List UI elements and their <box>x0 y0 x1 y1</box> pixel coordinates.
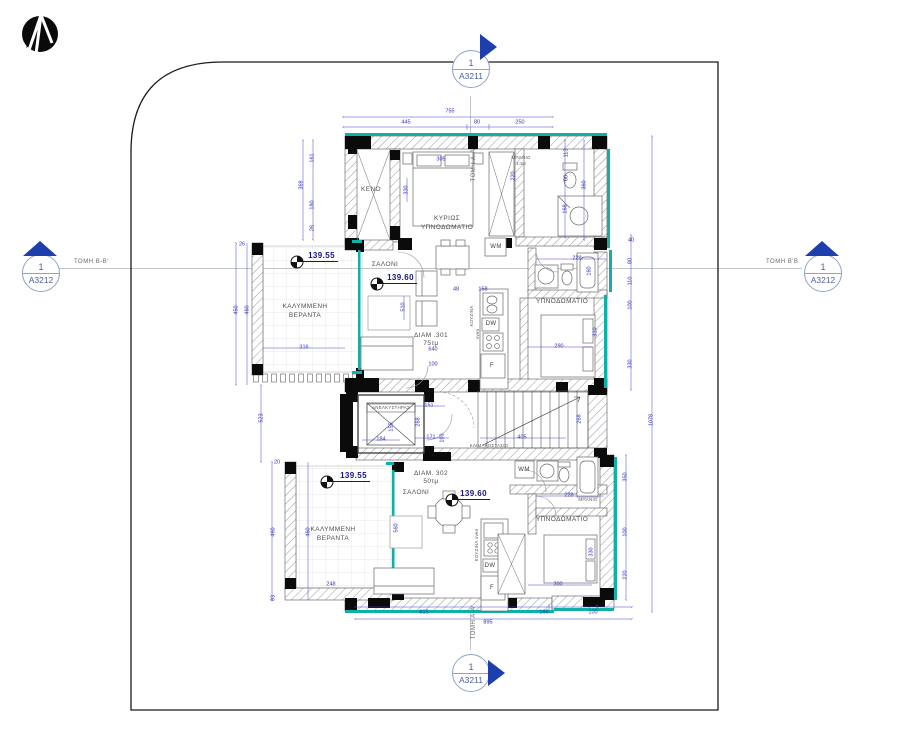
dimension-label: 228 <box>564 493 573 499</box>
dimension-label: 250 <box>515 120 524 126</box>
section-marker-circle: 1 A3212 <box>804 254 842 292</box>
section-number: 1 <box>453 662 489 674</box>
section-number: 1 <box>805 262 841 274</box>
dimension-label: 80 <box>628 258 634 264</box>
dimension-label: 450 <box>234 305 240 314</box>
room-label: ΒΕΡΑΝΤΑ <box>317 536 349 543</box>
dimension-label: 93 <box>271 595 277 601</box>
dimension-label: 510 <box>401 302 407 311</box>
dimension-label: 168 <box>563 204 569 213</box>
dimension-label: 184 <box>376 437 385 443</box>
dimension-label: 60 <box>564 175 570 181</box>
dimension-label: 220 <box>623 570 629 579</box>
section-marker-circle: 1 A3211 <box>452 654 490 692</box>
dimension-label: 310 <box>593 327 599 336</box>
level-marker-icon <box>446 494 459 507</box>
dimension-label: 405 <box>517 435 526 441</box>
dimension-label: 171 <box>426 435 435 441</box>
dimension-label: 220 <box>511 171 517 180</box>
dimension-label: 640 <box>428 347 437 353</box>
room-label: ΣΑΛΟΝΙ <box>403 490 430 497</box>
level-marker-icon <box>371 278 384 291</box>
dimension-label: 26 <box>239 242 245 248</box>
room-label: oven <box>476 329 481 340</box>
appliance-label: DW <box>485 563 496 569</box>
room-label: 50τμ <box>423 479 438 486</box>
section-sheet: A3211 <box>453 70 489 81</box>
section-marker-a3212-right: 1 A3212 <box>804 254 842 292</box>
dimension-label: 151 <box>424 403 433 409</box>
dimension-label: 161 <box>310 153 316 162</box>
appliance-label: WM <box>518 467 529 473</box>
section-sheet: A3212 <box>23 274 59 285</box>
room-label: ΑΝΕΛΚΥΣΤΗΡΑΣ <box>372 406 410 411</box>
dimension-label: 330 <box>589 547 595 556</box>
dimension-label: 26 <box>310 225 316 231</box>
room-label: ΔΙΑΜ. 302 <box>414 471 448 478</box>
dimension-label: 360 <box>582 180 588 189</box>
dimension-label: 20 <box>274 460 280 466</box>
dimension-label: 113 <box>564 149 570 158</box>
section-sheet: A3211 <box>453 674 489 685</box>
dimension-label: 305 <box>436 157 445 163</box>
dimension-label: 523 <box>259 413 265 422</box>
section-label-aa-top: ΤΟΜΗ Α-Α <box>471 149 477 182</box>
dimension-label: 268 <box>577 414 583 423</box>
room-label: 1:50 <box>516 162 526 167</box>
section-number: 1 <box>23 262 59 274</box>
dimension-label: 369 <box>299 180 305 189</box>
section-arrow-icon <box>480 34 497 60</box>
dimension-label: 330 <box>404 185 410 194</box>
dimension-label: 268 <box>416 417 422 426</box>
dimension-label: 615 <box>419 610 428 616</box>
section-marker-a3212-left: 1 A3212 <box>22 254 60 292</box>
dimension-label: 160 <box>587 266 593 275</box>
dimension-label: 895 <box>483 620 492 626</box>
room-label: ΚΕΝΟ <box>361 187 381 194</box>
dimension-label: 158 <box>478 287 487 293</box>
dimension-label: 40 <box>628 238 634 244</box>
room-label: ΚΟΥΖΙΝΑ oven <box>475 529 480 562</box>
dimension-label: 445 <box>401 120 410 126</box>
room-label: ΚΛΙΜΑΚΟΣΤΑΣΙΟ <box>470 444 509 449</box>
room-label: ΣΑΛΟΝΙ <box>372 262 399 269</box>
dimension-label: 160 <box>539 610 548 616</box>
dimension-label: 316 <box>299 345 308 351</box>
dimension-label: 460 <box>271 527 277 536</box>
dimension-label: 48 <box>453 287 459 293</box>
room-label: ΥΠΝΟΔΩΜΑΤΙΟ <box>536 517 588 524</box>
dimension-label: 290 <box>554 344 563 350</box>
staircase <box>438 391 588 448</box>
dimension-label: 155 <box>389 422 395 431</box>
section-sheet: A3212 <box>805 274 841 285</box>
dimension-label: 180 <box>310 200 316 209</box>
dimension-label: 755 <box>445 109 454 115</box>
dimension-label: 100 <box>588 610 597 616</box>
dimension-label: 560 <box>394 523 400 532</box>
dimension-label: 100 <box>623 527 629 536</box>
section-label-bb-left: ΤΟΜΗ Β-Β' <box>74 259 109 265</box>
appliance-label: DW <box>486 321 497 327</box>
room-label: ΔΙΑΜ .301 <box>414 333 448 340</box>
section-arrow-icon <box>805 241 839 256</box>
dimension-label: 103 <box>440 433 446 442</box>
room-label: ΜΠΑΝΙΟ <box>578 498 597 503</box>
section-label-bb-right: ΤΟΜΗ Β'Β <box>766 259 798 265</box>
level-marker-value: 139.55 <box>330 472 370 482</box>
room-label: ΚΟΥΖΙΝΑ <box>470 306 475 327</box>
dimension-label: 110 <box>628 277 634 286</box>
section-label-aa-bottom: ΤΟΜΗ Α-Α' <box>471 605 477 640</box>
dimension-label: 80 <box>474 120 480 126</box>
dimension-label: 1078 <box>649 414 655 426</box>
section-arrow-icon <box>23 241 57 256</box>
dimension-label: 100 <box>428 362 437 368</box>
room-label: ΚΑΛΥΜΜΕΝΗ <box>310 527 355 534</box>
section-marker-a3211-bottom: 1 A3211 <box>452 654 490 692</box>
level-marker-value: 139.55 <box>298 252 338 262</box>
section-marker-circle: 1 A3212 <box>22 254 60 292</box>
floorplan-sheet: ΚΕΝΟΚΥΡΙΩΣΥΠΝΟΔΩΜΑΤΙΟΜΠΑΝΙΟ1:50ΣΑΛΟΝΙΚΑΛ… <box>0 0 900 755</box>
room-label: ΒΕΡΑΝΤΑ <box>289 313 321 320</box>
dimension-label: 350 <box>623 472 629 481</box>
appliance-label: WM <box>490 244 501 250</box>
room-label: ΚΑΛΥΜΜΕΝΗ <box>282 304 327 311</box>
appliance-label: F <box>490 363 494 369</box>
level-marker-icon <box>291 256 304 269</box>
room-label: ΥΠΝΟΔΩΜΑΤΙΟ <box>421 225 473 232</box>
room-label: ΜΠΑΝΙΟ <box>511 156 530 161</box>
section-arrow-icon <box>488 660 505 686</box>
dimension-label: 100 <box>628 300 634 309</box>
section-marker-a3211-top: 1 A3211 <box>452 50 490 88</box>
dimension-label: 330 <box>628 359 634 368</box>
dimension-label: 460 <box>245 305 251 314</box>
room-label: ΥΠΝΟΔΩΜΑΤΙΟ <box>536 299 588 306</box>
dimension-label: 460 <box>306 527 312 536</box>
room-label: ΚΥΡΙΩΣ <box>434 216 460 223</box>
appliance-label: F <box>490 585 494 591</box>
dimension-label: 228 <box>572 256 581 262</box>
dimension-label: 248 <box>326 582 335 588</box>
dimension-label: 300 <box>553 582 562 588</box>
level-marker-icon <box>321 476 334 489</box>
